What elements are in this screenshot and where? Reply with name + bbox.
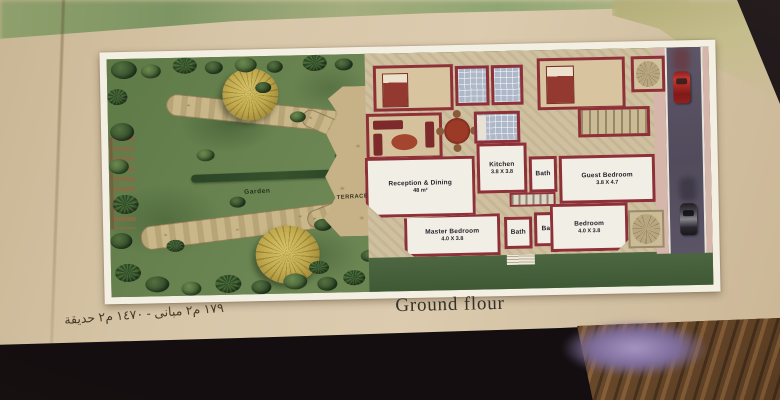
furnished-bath [455, 65, 490, 106]
bush-icon [110, 233, 132, 249]
bush-icon [283, 273, 307, 289]
bush-icon [251, 280, 271, 294]
furnished-bedroom [373, 64, 454, 112]
furnished-bath [491, 65, 524, 106]
bush-icon [196, 149, 214, 161]
room-dims: 4.0 X 3.8 [578, 228, 600, 235]
blurred-object [540, 314, 738, 390]
room-label: Bath [535, 170, 550, 178]
sofa-icon [373, 120, 403, 130]
bush-icon [205, 61, 223, 74]
bush-icon [145, 276, 169, 292]
bush-icon [173, 57, 197, 73]
room-bath: Bath [529, 156, 558, 193]
spiral-stair [631, 56, 666, 93]
bush-icon [267, 61, 283, 73]
furnished-living-room [366, 112, 443, 160]
spiral-stair-icon [636, 61, 661, 87]
bed-icon [546, 66, 575, 105]
counter [478, 115, 487, 139]
furnished-kitchen [474, 111, 521, 144]
windshield [683, 210, 694, 216]
entrance-steps [507, 254, 535, 265]
room-label: Bath [511, 229, 526, 237]
adjacent-page-top [0, 0, 690, 44]
bush-icon [107, 89, 127, 105]
bush-icon [115, 264, 141, 283]
bush-icon [343, 270, 365, 285]
bush-icon [215, 275, 241, 294]
room-kitchen: Kitchen 3.8 X 3.8 [476, 143, 527, 194]
brochure-photo: Reception & Dining 48 m² Kitchen 3.8 X 3… [0, 0, 780, 400]
room-dims: 3.8 X 3.8 [491, 168, 513, 175]
bush-icon [317, 277, 337, 291]
room-dims: 48 m² [413, 187, 428, 194]
black-car-icon [680, 203, 698, 235]
garden-label: Garden [227, 187, 287, 197]
room-dims: 3.8 X 4.7 [596, 179, 618, 186]
red-car-icon [673, 71, 691, 103]
bush-icon [181, 281, 201, 295]
pergola [109, 137, 136, 230]
bush-icon [309, 261, 329, 274]
bush-icon [166, 240, 184, 252]
rug-icon [391, 134, 417, 151]
car-shadow [679, 177, 696, 201]
room-reception: Reception & Dining 48 m² [365, 156, 476, 218]
room-bath: Bath [504, 216, 533, 249]
bed-icon [382, 73, 409, 108]
room-dims: 4.0 X 3.8 [441, 236, 463, 243]
page-fold [50, 0, 65, 348]
bush-icon [335, 58, 353, 70]
room-bedroom: Bedroom 4.0 X 3.8 [550, 202, 629, 252]
bush-icon [303, 55, 327, 71]
car-shadow [672, 47, 689, 71]
bush-icon [229, 196, 245, 207]
sofa-icon [373, 134, 382, 156]
spiral-stair-icon [632, 214, 661, 245]
furnished-bedroom [537, 56, 626, 110]
floor-plan-sheet: Reception & Dining 48 m² Kitchen 3.8 X 3… [99, 40, 720, 305]
stair-hall [578, 106, 651, 138]
room-master-bedroom: Master Bedroom 4.0 X 3.8 [404, 213, 501, 257]
bush-icon [111, 61, 137, 80]
windshield [676, 78, 687, 84]
lawn-strip [369, 251, 714, 292]
bush-icon [141, 64, 161, 78]
room-guest-bedroom: Guest Bedroom 3.8 X 4.7 [559, 154, 656, 204]
staircase [509, 192, 555, 207]
site-plan: Reception & Dining 48 m² Kitchen 3.8 X 3… [107, 47, 714, 298]
hedge [191, 169, 343, 183]
spiral-stair [628, 210, 665, 249]
sofa-icon [425, 121, 435, 147]
